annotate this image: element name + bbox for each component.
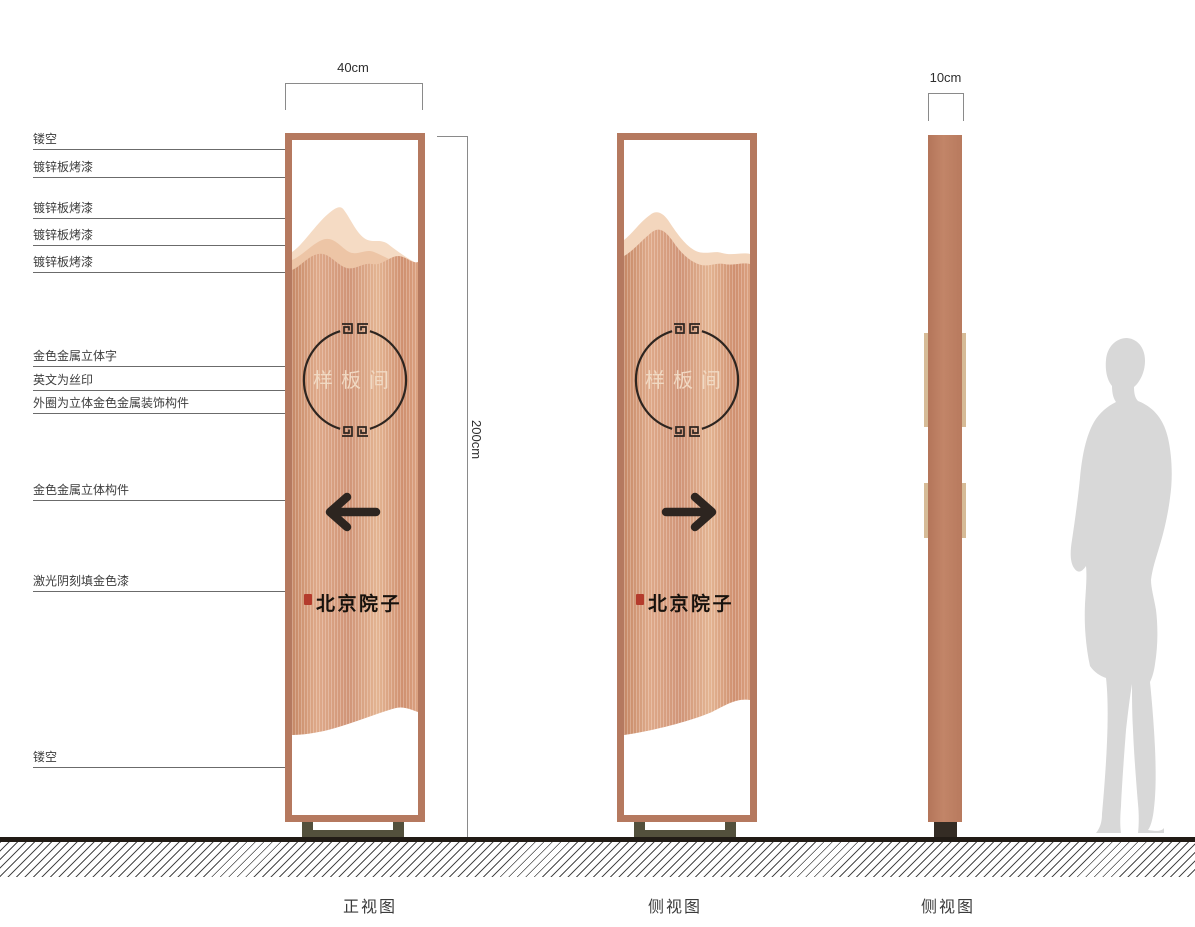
callout-label: 镀锌板烤漆	[33, 229, 295, 246]
callout-label: 镂空	[33, 751, 301, 768]
sign-panel-front-view: 样板间 北京院子	[285, 133, 425, 822]
callout-label: 镀锌板烤漆	[33, 161, 285, 178]
dimension-bracket-10cm	[928, 93, 964, 121]
brand-signature: 北京院子	[636, 592, 734, 615]
callout-label: 外圈为立体金色金属装饰构件	[33, 397, 312, 414]
profile-emblem-protrusion	[924, 333, 928, 427]
brushed-texture	[624, 230, 750, 735]
profile-emblem-protrusion	[962, 333, 966, 427]
view-label-side: 侧视图	[898, 893, 998, 917]
sign-panel-artwork: 样板间 北京院子	[624, 140, 750, 815]
profile-arrow-protrusion	[924, 483, 928, 538]
callout-label: 镀锌板烤漆	[33, 202, 322, 219]
red-seal-icon	[304, 594, 312, 605]
dimension-bracket-40cm	[285, 83, 423, 110]
ground-hatching	[0, 842, 1195, 877]
dimension-side-width: 10cm	[908, 70, 983, 85]
profile-arrow-protrusion	[962, 483, 966, 538]
brand-text: 北京院子	[648, 592, 734, 615]
emblem-text: 样板间	[313, 369, 397, 392]
human-scale-silhouette	[1028, 336, 1178, 836]
dimension-front-width: 40cm	[285, 60, 421, 75]
view-label-side: 侧视图	[625, 893, 725, 917]
signage-construction-drawing: 镂空 镀锌板烤漆 镀锌板烤漆 镀锌板烤漆 镀锌板烤漆 金色金属立体字 英文为丝印…	[0, 0, 1195, 927]
dimension-height: 200cm	[469, 420, 484, 459]
brushed-texture	[292, 254, 418, 735]
sign-panel-side-view: 样板间 北京院子	[617, 133, 757, 822]
brand-signature: 北京院子	[304, 592, 402, 615]
sign-panel-artwork: 样板间 北京院子	[292, 140, 418, 815]
callout-label: 镀锌板烤漆	[33, 256, 289, 273]
profile-base-block	[934, 822, 957, 838]
brand-text: 北京院子	[316, 592, 402, 615]
sign-panel-profile-view	[928, 135, 962, 822]
view-label-front: 正视图	[320, 893, 420, 917]
callout-label: 镂空	[33, 133, 307, 150]
emblem-text: 样板间	[645, 369, 729, 392]
red-seal-icon	[636, 594, 644, 605]
callout-label: 金色金属立体字	[33, 350, 327, 367]
dimension-tick-top	[437, 136, 468, 137]
dimension-line-height	[467, 136, 468, 837]
